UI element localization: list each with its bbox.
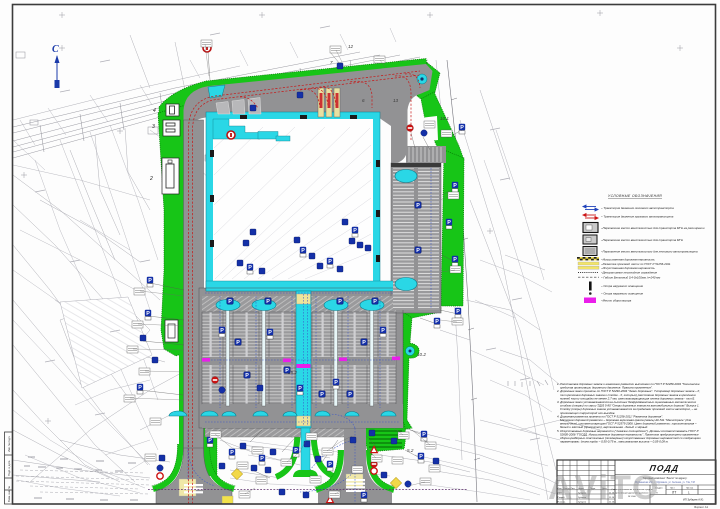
svg-text:ИП Зубарев А.Ю.: ИП Зубарев А.Ю.	[683, 498, 704, 502]
svg-text:ЛТ: ЛТ	[672, 490, 676, 494]
svg-text:12: 12	[348, 44, 354, 49]
svg-text:С: С	[52, 44, 59, 55]
svg-text:Листов: Листов	[686, 487, 694, 489]
svg-text:5.2: 5.2	[407, 448, 414, 453]
svg-text:4: 4	[153, 108, 156, 114]
svg-text:Подп. и дата: Подп. и дата	[7, 460, 11, 476]
svg-text:Лист: Лист	[670, 487, 675, 489]
svg-text:– Опора наружного освещения: – Опора наружного освещения	[600, 292, 643, 296]
svg-text:10.1: 10.1	[440, 116, 449, 121]
svg-text:– Траектория движения легковог: – Траектория движения легкового автотран…	[600, 206, 674, 210]
svg-text:Взам. инв. №: Взам. инв. №	[7, 486, 11, 502]
svg-text:– Опора наружного освещения: – Опора наружного освещения	[600, 284, 643, 288]
svg-text:– Габион Бетонный 0,4-0х100мм,: – Габион Бетонный 0,4-0х100мм, h=240 мм	[600, 275, 660, 279]
svg-text:3: 3	[152, 124, 155, 130]
svg-text:7: 7	[330, 60, 333, 65]
svg-text:–Декоративное пешеходное ограж: –Декоративное пешеходное ограждение	[600, 271, 658, 275]
svg-text:–Искусственная дорожная неровн: –Искусственная дорожная неровность	[600, 258, 655, 262]
svg-text:–Парковочное место вместимость: –Парковочное место вместимостью для тран…	[600, 226, 705, 230]
svg-text:АViТО: АViТО	[548, 469, 660, 507]
svg-text:Формат А1: Формат А1	[694, 505, 709, 509]
svg-text:13: 13	[393, 98, 399, 103]
svg-text:6: 6	[362, 98, 365, 103]
svg-text:2: 2	[149, 176, 153, 182]
svg-text:параметрами: длина корды – 0,: параметрами: длина корды – 0,50-0,75 м.,…	[560, 440, 669, 444]
svg-text:Инв. № подл.: Инв. № подл.	[7, 436, 11, 452]
svg-text:–Парковочное место вместимость: –Парковочное место вместимостью для легк…	[600, 250, 698, 254]
svg-text:–Искусственная дорожная неровн: –Искусственная дорожная неровность	[600, 266, 655, 270]
svg-text:–Место сбора мусора: –Место сбора мусора	[600, 299, 632, 303]
svg-text:10.2: 10.2	[417, 352, 426, 357]
svg-text:–Парковочное место вместимость: –Парковочное место вместимостью для тран…	[600, 238, 684, 242]
svg-text:УСЛОВНЫЕ ОБОЗНАЧЕНИЯ: УСЛОВНЫЕ ОБОЗНАЧЕНИЯ	[608, 194, 662, 198]
svg-text:– Траектория движения грузовог: – Траектория движения грузового автотран…	[600, 215, 674, 219]
